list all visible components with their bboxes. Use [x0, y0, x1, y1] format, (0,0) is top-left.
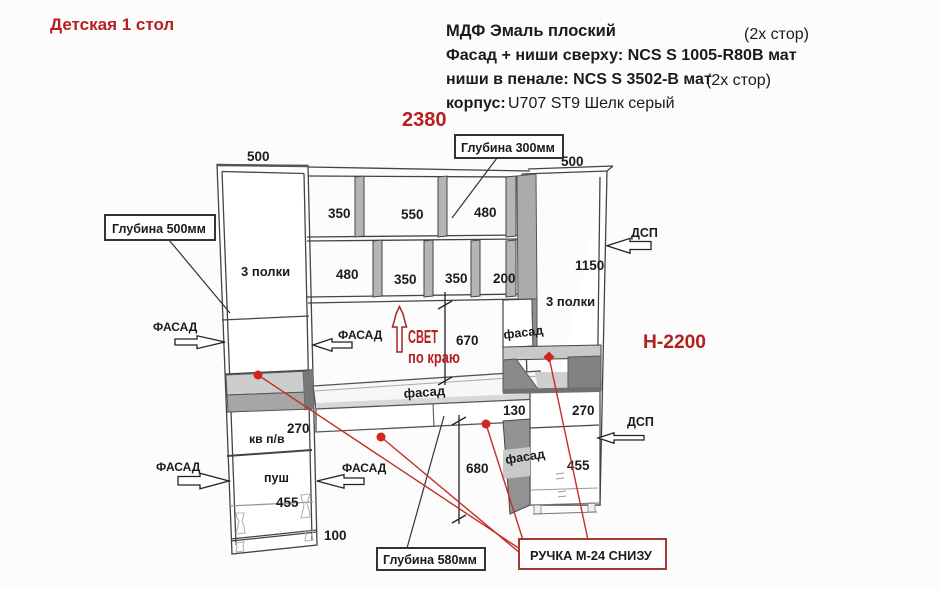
svg-text:350: 350 [394, 272, 417, 287]
svg-text:по краю: по краю [408, 348, 460, 367]
svg-text:3 полки: 3 полки [241, 264, 290, 279]
svg-text:Фасад + ниши сверху: NCS S 100: Фасад + ниши сверху: NCS S 1005-R80B мат [446, 46, 797, 64]
svg-text:200: 200 [493, 271, 516, 286]
svg-text:500: 500 [247, 149, 270, 164]
svg-text:кв п/в: кв п/в [249, 432, 285, 446]
svg-text:350: 350 [328, 206, 351, 221]
svg-text:130: 130 [503, 403, 526, 418]
svg-text:МДФ Эмаль плоский: МДФ Эмаль плоский [446, 22, 616, 40]
svg-text:ФАСАД: ФАСАД [156, 460, 201, 474]
svg-text:Глубина 580мм: Глубина 580мм [383, 553, 477, 567]
svg-text:350: 350 [445, 271, 468, 286]
svg-text:(2х стор): (2х стор) [706, 72, 771, 89]
svg-text:680: 680 [466, 461, 489, 476]
svg-text:2380: 2380 [402, 109, 447, 131]
svg-text:фасад: фасад [403, 383, 446, 401]
svg-text:корпус:: корпус: [446, 95, 506, 112]
svg-text:Глубина 300мм: Глубина 300мм [461, 141, 555, 155]
svg-text:СВЕТ: СВЕТ [408, 327, 438, 347]
svg-text:500: 500 [561, 154, 584, 169]
svg-text:ФАСАД: ФАСАД [342, 461, 387, 475]
svg-text:U707 ST9 Шелк серый: U707 ST9 Шелк серый [508, 95, 675, 112]
svg-text:ФАСАД: ФАСАД [153, 320, 198, 334]
svg-text:ФАСАД: ФАСАД [338, 328, 383, 342]
svg-text:480: 480 [336, 267, 359, 282]
svg-text:РУЧКА М-24 СНИЗУ: РУЧКА М-24 СНИЗУ [530, 548, 653, 563]
svg-text:480: 480 [474, 205, 497, 220]
svg-text:455: 455 [276, 495, 299, 510]
svg-text:пуш: пуш [264, 471, 289, 485]
svg-text:(2х стор): (2х стор) [744, 26, 809, 43]
svg-text:Н-2200: Н-2200 [643, 331, 706, 353]
svg-text:3 полки: 3 полки [546, 294, 595, 309]
svg-text:ДСП: ДСП [631, 226, 658, 240]
svg-text:270: 270 [572, 403, 595, 418]
svg-text:270: 270 [287, 421, 310, 436]
svg-text:550: 550 [401, 207, 424, 222]
svg-text:100: 100 [324, 528, 347, 543]
svg-text:Глубина 500мм: Глубина 500мм [112, 222, 206, 236]
svg-text:ниши в пенале: NCS S 3502-В ма: ниши в пенале: NCS S 3502-В мат [446, 71, 712, 88]
svg-text:ДСП: ДСП [627, 415, 654, 429]
svg-text:1150: 1150 [575, 258, 604, 273]
svg-text:Детская 1 стол: Детская 1 стол [50, 15, 174, 34]
svg-text:670: 670 [456, 333, 479, 348]
